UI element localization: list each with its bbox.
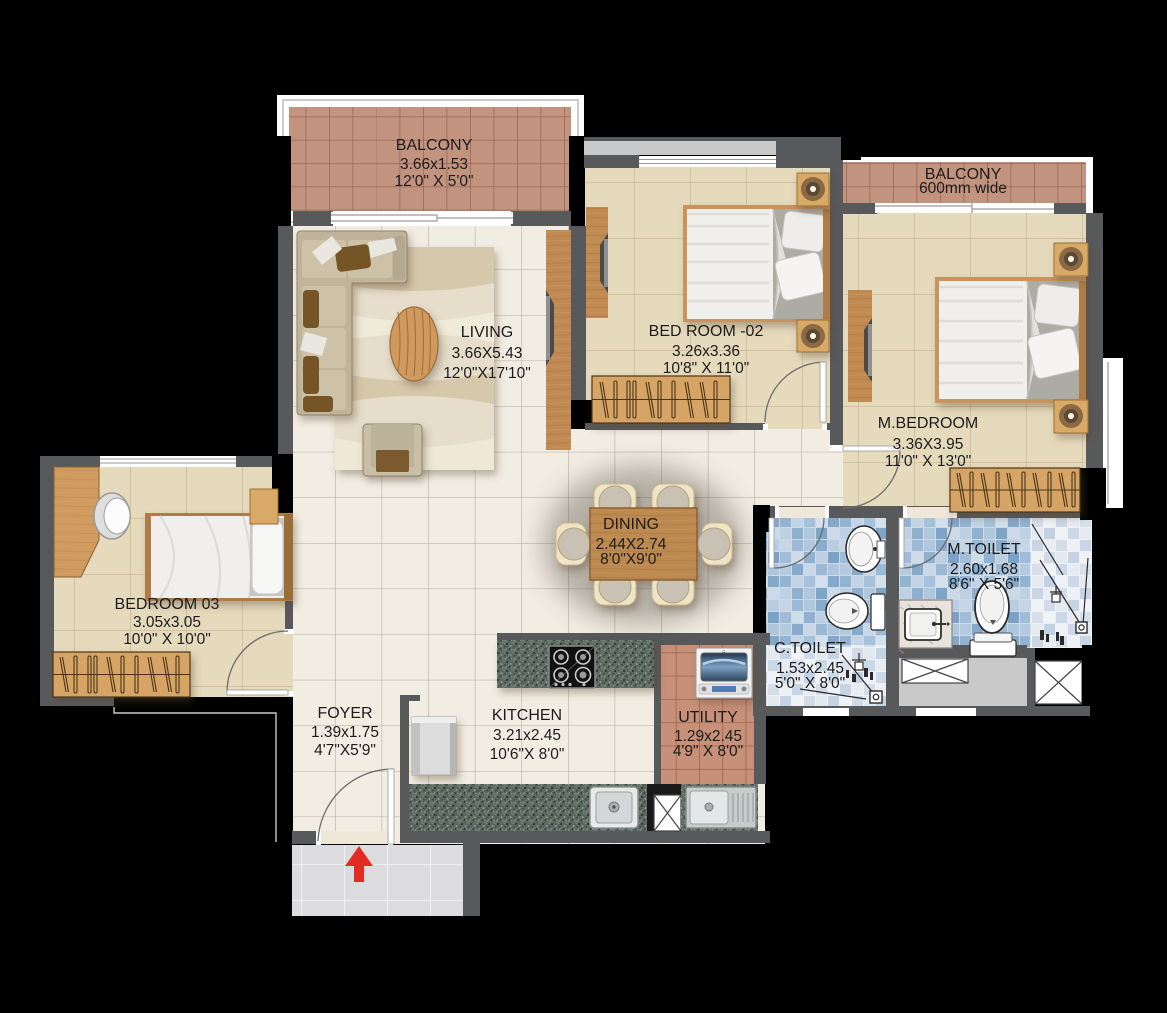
svg-text:BED ROOM -02: BED ROOM -02 bbox=[649, 323, 764, 340]
svg-text:12'0"X17'10": 12'0"X17'10" bbox=[443, 365, 531, 382]
svg-text:⌂: ⌂ bbox=[722, 649, 725, 655]
svg-text:1.39x1.75: 1.39x1.75 bbox=[311, 724, 379, 741]
svg-text:3.26x3.36: 3.26x3.36 bbox=[672, 343, 740, 360]
svg-text:DINING: DINING bbox=[603, 516, 659, 533]
svg-text:8'0"X9'0": 8'0"X9'0" bbox=[600, 551, 662, 568]
svg-text:3.21x2.45: 3.21x2.45 bbox=[493, 727, 561, 744]
svg-text:3.66x1.53: 3.66x1.53 bbox=[400, 156, 468, 173]
svg-text:M.BEDROOM: M.BEDROOM bbox=[878, 415, 978, 432]
svg-text:10'0" X 10'0": 10'0" X 10'0" bbox=[123, 631, 211, 648]
svg-text:LIVING: LIVING bbox=[461, 324, 513, 341]
svg-text:3.36X3.95: 3.36X3.95 bbox=[893, 436, 964, 453]
svg-text:4'9" X 8'0": 4'9" X 8'0" bbox=[673, 743, 743, 760]
svg-text:KITCHEN: KITCHEN bbox=[492, 707, 562, 724]
svg-text:8'6" X 5'6": 8'6" X 5'6" bbox=[949, 576, 1019, 593]
svg-text:10'6"X 8'0": 10'6"X 8'0" bbox=[490, 746, 565, 763]
svg-text:5'0" X 8'0": 5'0" X 8'0" bbox=[775, 675, 845, 692]
svg-text:3.05x3.05: 3.05x3.05 bbox=[133, 614, 201, 631]
svg-text:BEDROOM 03: BEDROOM 03 bbox=[115, 596, 220, 613]
svg-text:4'7"X5'9": 4'7"X5'9" bbox=[314, 742, 376, 759]
svg-text:C.TOILET: C.TOILET bbox=[774, 640, 846, 657]
svg-text:BALCONY: BALCONY bbox=[396, 137, 473, 154]
svg-text:M.TOILET: M.TOILET bbox=[947, 541, 1021, 558]
svg-text:3.66X5.43: 3.66X5.43 bbox=[452, 345, 523, 362]
svg-text:UTILITY: UTILITY bbox=[678, 709, 738, 726]
svg-text:12'0" X 5'0": 12'0" X 5'0" bbox=[395, 173, 474, 190]
svg-text:10'8" X 11'0": 10'8" X 11'0" bbox=[663, 360, 749, 377]
svg-text:600mm wide: 600mm wide bbox=[919, 180, 1007, 197]
svg-text:11'0" X 13'0": 11'0" X 13'0" bbox=[885, 453, 971, 470]
svg-text:FOYER: FOYER bbox=[317, 705, 372, 722]
